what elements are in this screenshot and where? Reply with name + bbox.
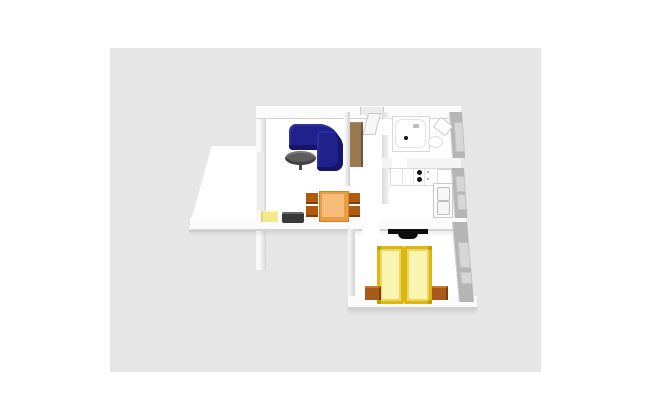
bed-post <box>377 246 381 250</box>
nightstand-left <box>365 286 381 300</box>
dining-chair <box>348 193 360 204</box>
kitchen-window-lower <box>457 194 467 210</box>
wall-kitchen-west <box>382 168 389 204</box>
bathtub-faucet <box>413 124 419 128</box>
bedroom-wardrobe-front <box>398 233 418 239</box>
dining-table-top <box>322 194 344 217</box>
coffee-table <box>285 151 316 165</box>
floorplan-screenshot <box>0 0 650 420</box>
wall-east-kitchen <box>451 168 467 218</box>
dining-chair <box>306 193 318 204</box>
bathtub-basin <box>395 119 426 148</box>
bed-post <box>377 300 381 304</box>
kitchen-tall-cabinet <box>433 183 453 218</box>
bedroom-window-small <box>460 272 472 284</box>
tv-lowboard <box>282 212 304 223</box>
stove-knob <box>427 171 429 173</box>
bed-post <box>428 246 432 250</box>
cabinet-door-lower <box>437 201 450 215</box>
cabinet-door-upper <box>437 187 450 201</box>
nightstand-right <box>432 286 448 300</box>
kitchen-window-upper <box>456 176 466 192</box>
dining-chair <box>348 206 360 217</box>
mattress-left <box>377 246 404 304</box>
toilet <box>428 136 443 148</box>
stove-knob <box>427 178 429 180</box>
stove-burner <box>417 177 422 182</box>
hallway-shelf <box>350 122 363 167</box>
bathtub-drain <box>404 136 408 140</box>
yellow-sideboard <box>261 211 278 222</box>
mattress-right <box>404 246 432 304</box>
wall-bedroom-west <box>348 229 355 298</box>
bed-post <box>428 300 432 304</box>
stove-burner <box>417 170 422 175</box>
terrace-door-glass <box>257 152 264 210</box>
dining-chair <box>306 206 318 217</box>
counter-divider <box>424 169 425 185</box>
counter-divider <box>413 169 414 185</box>
corner-sofa-side-section <box>317 131 343 171</box>
counter-divider <box>402 169 403 185</box>
render-canvas <box>110 48 541 372</box>
bedroom-window <box>458 242 471 268</box>
wall-bathroom-west-upper <box>382 112 389 119</box>
wall-east-bathroom <box>449 112 465 158</box>
kitchen-counter <box>390 168 438 186</box>
bathroom-window <box>454 122 465 152</box>
wall-north <box>256 106 461 119</box>
double-bed <box>377 246 432 298</box>
